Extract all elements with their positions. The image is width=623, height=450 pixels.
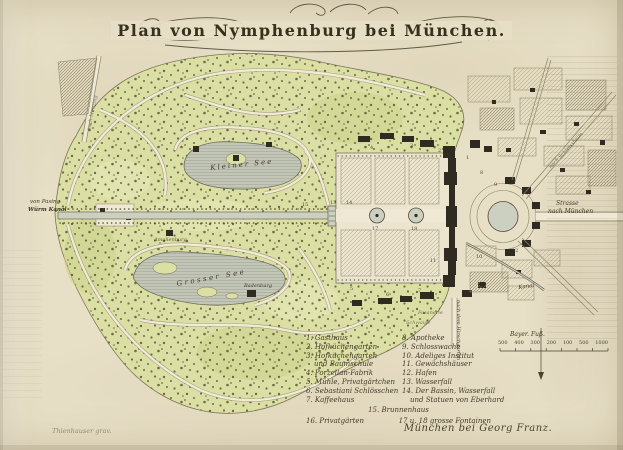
site-number: 6: [386, 292, 389, 298]
legend-item: 10. Adeliges Institut: [402, 352, 488, 361]
map-sheet: Plan von Nymphenburg bei München. Kleine…: [0, 0, 623, 450]
scale-label: Bayer. Fuß.: [510, 331, 545, 338]
engraver-signature: Thienhauser grav.: [52, 427, 111, 435]
scale-tick: 400: [514, 340, 524, 346]
site-number: 18: [411, 226, 417, 232]
legend-item: 9. Schlosswache: [402, 343, 488, 352]
scale-tick: 1000: [595, 340, 608, 346]
scale-tick: 100: [563, 340, 573, 346]
publisher-imprint: München bei Georg Franz.: [388, 423, 568, 434]
site-number: 7: [418, 288, 421, 294]
scale-tick: 500: [579, 340, 589, 346]
site-number: 5: [350, 286, 353, 292]
site-number: 9: [494, 182, 497, 188]
site-number: 3: [410, 143, 413, 149]
label-schwaige: Schwaige: [406, 320, 430, 326]
legend-item: 13. Wasserfall: [402, 378, 488, 387]
legend-item: 3. Hofküchengarten: [306, 352, 392, 361]
legend-item: 1. Gasthaus: [306, 334, 392, 343]
label-amalienburg: Amalienburg: [154, 237, 187, 243]
map-title-text: Plan von Nymphenburg bei München.: [111, 21, 512, 40]
legend-column-right: 8. Apotheke 9. Schlosswache 10. Adeliges…: [402, 334, 488, 404]
label-von-pasing: von Pasing: [30, 199, 60, 205]
label-fasanerie: Fasanerie: [418, 310, 443, 316]
verso-bleedthrough-left: [2, 250, 42, 400]
label-badenburg: Badenburg: [244, 283, 272, 289]
legend-item: und Statuen von Eberhard: [402, 396, 488, 405]
legend-item: 8. Apotheke: [402, 334, 488, 343]
legend-item: 11. Gewächshäuser: [402, 360, 488, 369]
scale-bar: 500 400 300 200 100 500 1000: [497, 340, 609, 346]
site-number: 14: [346, 200, 352, 206]
site-number: 15: [302, 202, 308, 208]
site-number: 4: [370, 145, 373, 151]
legend-item: 2. Hofküchengarten: [306, 343, 392, 352]
legend: 1. Gasthaus 2. Hofküchengarten 3. Hofküc…: [306, 334, 491, 425]
scale-tick: 200: [547, 340, 557, 346]
legend-item-16: 16. Privatgärten: [306, 417, 364, 425]
legend-item-15: 15. Brunnenhaus: [306, 406, 491, 415]
site-number: 8: [480, 170, 483, 176]
label-nach-muenchen: nach München: [548, 208, 593, 215]
site-number: 2: [438, 148, 441, 154]
site-number: 10: [476, 254, 482, 260]
legend-item: 12. Hafen: [402, 369, 488, 378]
legend-item: 4. Porzellan-Fabrik: [306, 369, 392, 378]
legend-column-left: 1. Gasthaus 2. Hofküchengarten 3. Hofküc…: [306, 334, 392, 404]
label-wuerm-kanal: Würm Kanal: [28, 207, 67, 213]
legend-item: 5. Mühle, Privatgärtchen: [306, 378, 392, 387]
site-number: 17: [372, 226, 378, 232]
legend-item: 7. Kaffeehaus: [306, 396, 392, 405]
site-number: 1: [466, 155, 469, 161]
map-title: Plan von Nymphenburg bei München.: [0, 21, 623, 40]
legend-item: 14. Der Bassin, Wasserfall: [402, 387, 488, 396]
label-strasse: Strasse: [556, 200, 579, 207]
legend-item: 6. Sebastiani Schlösschen: [306, 387, 392, 396]
site-number: 12: [512, 248, 518, 254]
legend-item: und Baumschule: [306, 360, 392, 369]
scale-tick: 300: [530, 340, 540, 346]
scale-tick: 500: [498, 340, 508, 346]
site-number: 13: [330, 200, 336, 206]
site-number: 11: [430, 258, 436, 264]
